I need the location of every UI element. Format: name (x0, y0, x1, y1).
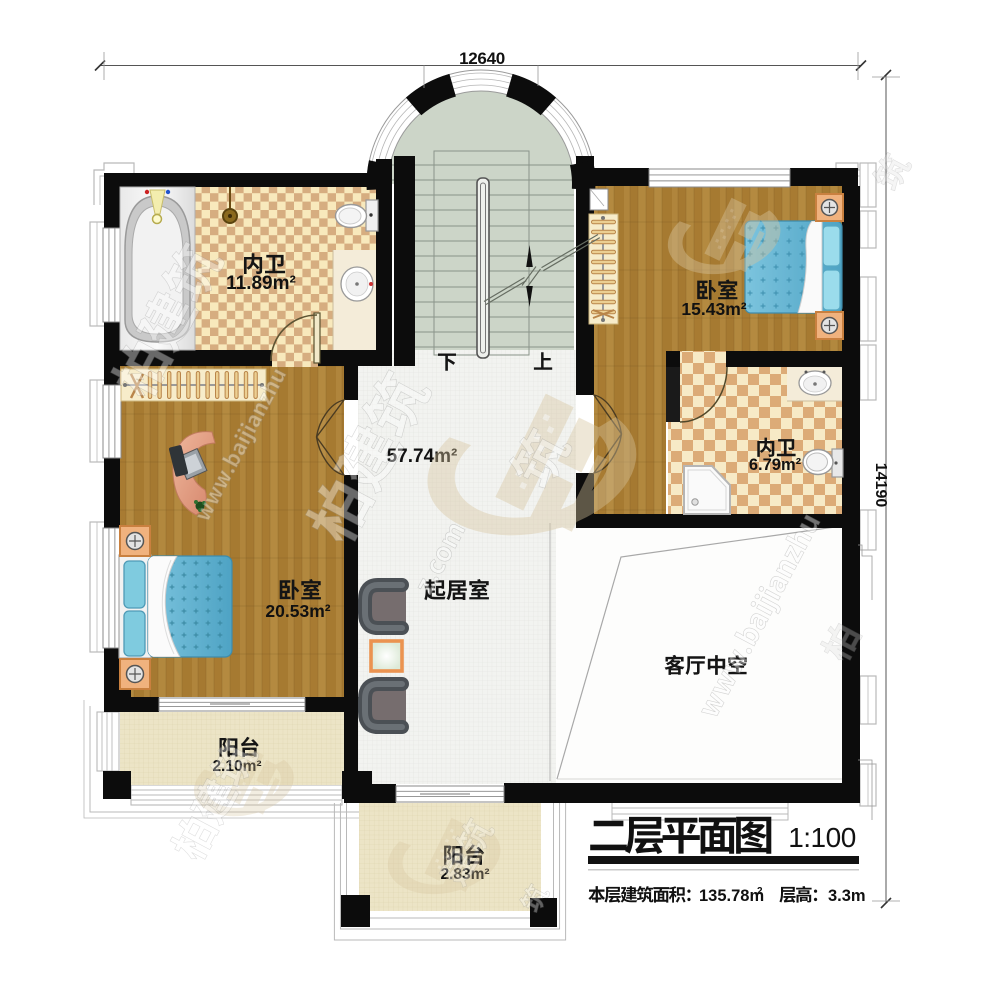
svg-text:15.43m²: 15.43m² (681, 299, 746, 319)
svg-text:1:100: 1:100 (788, 822, 856, 853)
svg-text:135.78m: 135.78m (699, 887, 764, 905)
svg-text:20.53m²: 20.53m² (265, 601, 330, 621)
svg-text:14190: 14190 (872, 463, 889, 508)
svg-text:3.3m: 3.3m (828, 887, 866, 905)
svg-text:11.89m²: 11.89m² (226, 273, 296, 294)
svg-text:12640: 12640 (459, 49, 505, 68)
svg-text:2: 2 (757, 886, 763, 897)
svg-text:6.79m²: 6.79m² (749, 456, 802, 474)
